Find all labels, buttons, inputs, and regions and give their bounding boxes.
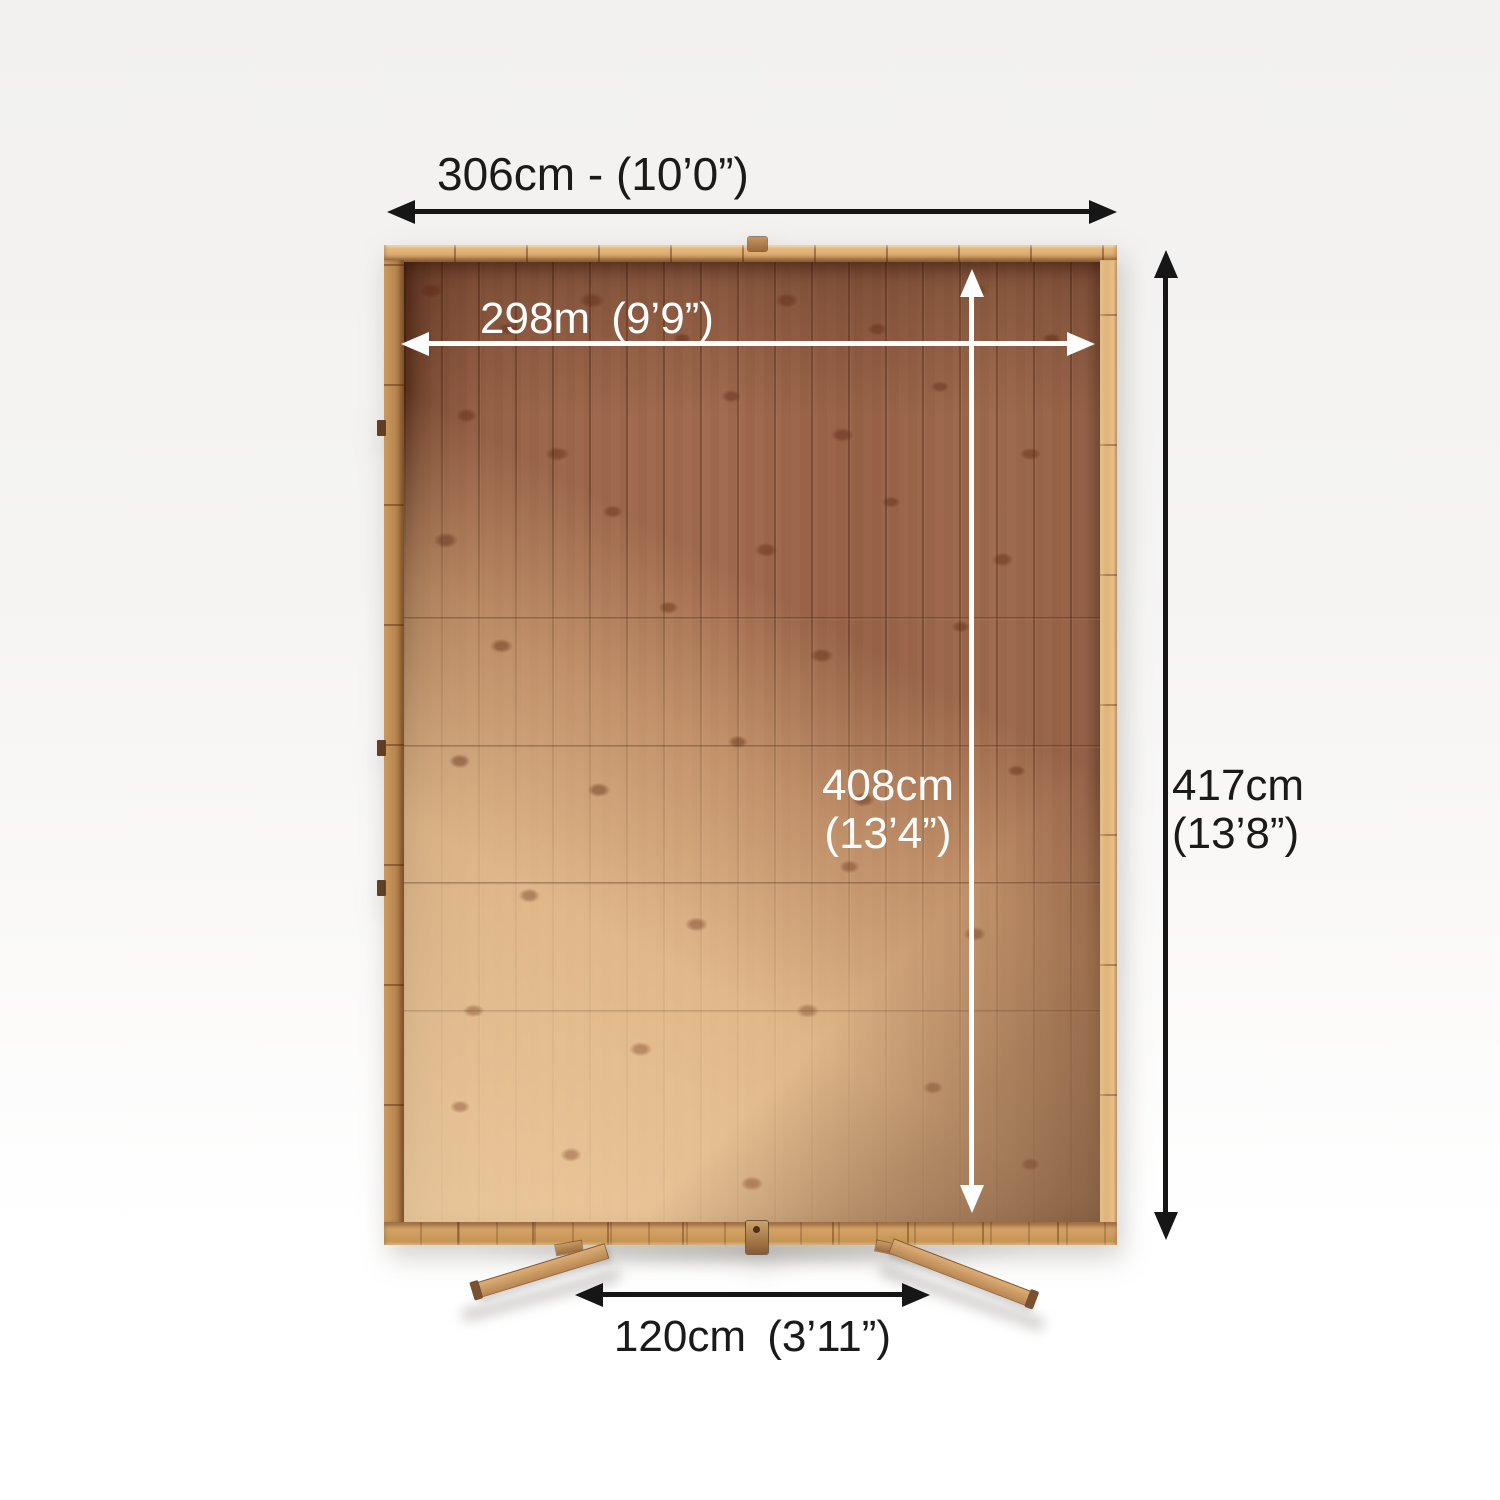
shed-floor	[404, 262, 1100, 1222]
overall-depth-imperial: (13’8”)	[1172, 810, 1304, 858]
shed-left-wall	[384, 260, 404, 1224]
overall-depth-arrow	[1163, 277, 1168, 1213]
wood-knots-texture	[404, 262, 1100, 1222]
overall-depth-metric: 417cm	[1172, 762, 1304, 810]
roof-apex-notch	[748, 237, 767, 251]
arrowhead-right-icon	[1089, 200, 1117, 224]
overall-width-arrow	[414, 209, 1090, 214]
door-width-arrow	[602, 1292, 903, 1297]
shed-right-wall	[1100, 260, 1117, 1224]
overall-width-label: 306cm - (10’0”)	[437, 150, 749, 198]
plank-seam	[404, 1010, 1100, 1013]
wall-bracket	[377, 740, 386, 756]
arrowhead-left-icon	[387, 200, 415, 224]
wall-bracket	[377, 880, 386, 896]
shed-dimension-diagram: 306cm - (10’0”) 298m (9’9”) 408cm (13’4”…	[0, 0, 1500, 1500]
overall-depth-label: 417cm (13’8”)	[1172, 762, 1304, 858]
door-width-label: 120cm (3’11”)	[570, 1313, 935, 1361]
wall-bracket	[377, 420, 386, 436]
shed-top-view	[384, 245, 1117, 1245]
arrowhead-up-icon	[1154, 250, 1178, 278]
door-latch	[746, 1221, 768, 1254]
plank-seam	[404, 617, 1100, 620]
plank-seam	[404, 745, 1100, 748]
plank-seam	[404, 882, 1100, 885]
arrowhead-down-icon	[1154, 1212, 1178, 1240]
